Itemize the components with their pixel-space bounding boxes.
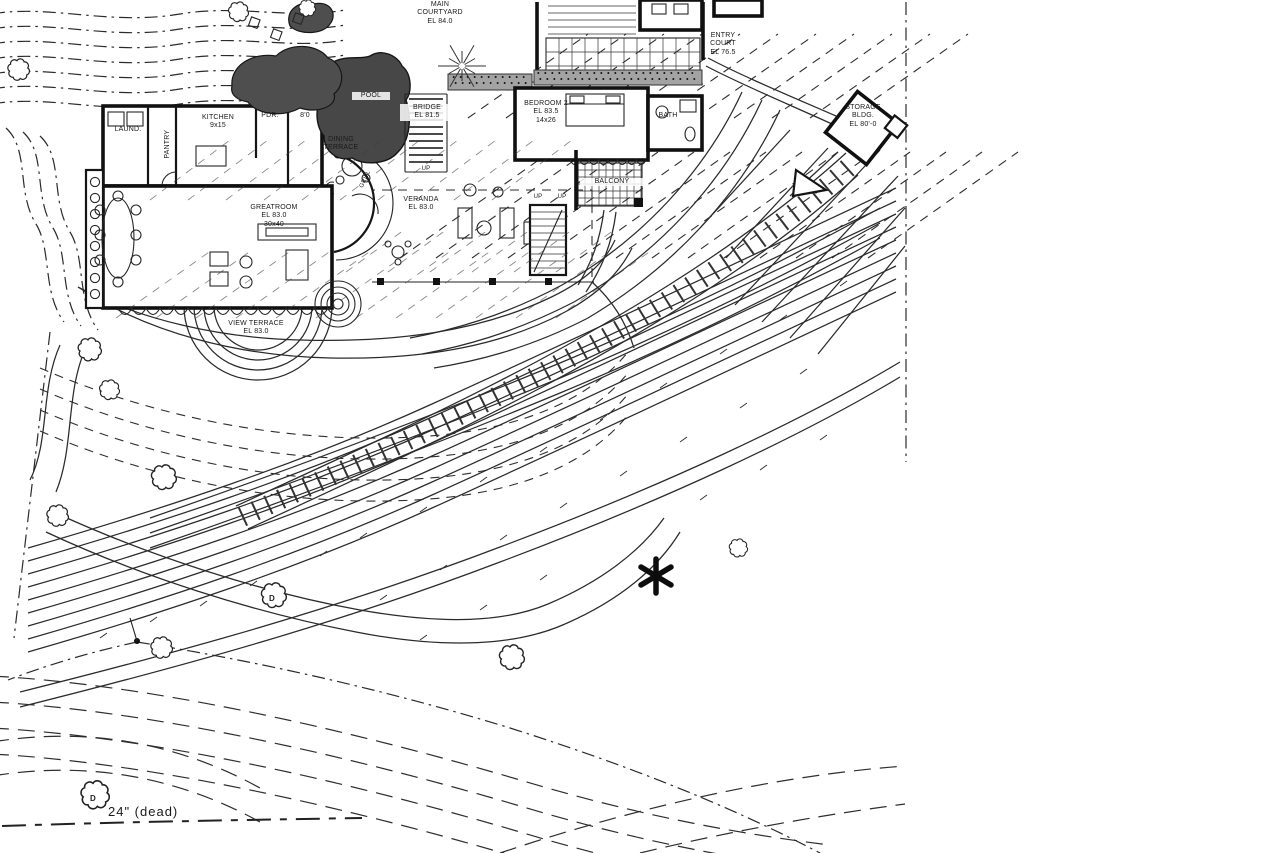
label-storage-bldg: STORAGE BLDG. EL 80'-0 [830, 104, 896, 129]
label-view-terrace: VIEW TERRACE EL 83.0 [210, 320, 302, 337]
label-dining-terrace: DINING TERRACE [314, 136, 368, 153]
label-up-bridge: UP [414, 166, 438, 173]
label-main-courtyard: MAIN COURTYARD EL 84.0 [405, 1, 475, 26]
great-room [86, 170, 361, 327]
label-closet-8-0: 8'0 [290, 112, 320, 120]
label-up-stair-a: UP [528, 194, 548, 201]
label-kitchen: KITCHEN 9x15 [188, 114, 248, 131]
label-pantry: PANTRY [164, 116, 172, 172]
slope-hatch-right [700, 130, 905, 354]
label-pool: POOL [352, 92, 390, 100]
contour-lines-lower [0, 676, 830, 853]
tree-tag-letter: D [269, 594, 275, 603]
label-bedroom2: BEDROOM 2 EL 83.5 14x26 [508, 100, 584, 125]
label-entry-court: ENTRY COURT EL 76.5 [695, 32, 751, 57]
label-greatroom: GREATROOM EL 83.0 30x40 [232, 204, 316, 229]
site-marker-asterisk [641, 559, 671, 593]
label-bridge: BRIDGE EL 81.5 [400, 104, 454, 121]
label-laundry: LAUND. [106, 126, 150, 134]
label-up-stair-b: UP [552, 194, 572, 201]
storage-paths [790, 152, 838, 196]
label-bath: BATH [648, 112, 688, 120]
label-balcony: BALCONY [580, 178, 644, 186]
tree-tag-letter: D [90, 794, 96, 803]
label-powder-room: PDR. [254, 112, 286, 120]
site-plan-page: DD MAIN COURTYARD EL 84.0 ENTRY COURT EL… [0, 0, 1280, 853]
tree-canopy [232, 3, 342, 114]
dining-terrace [334, 146, 393, 260]
label-veranda: VERANDA EL 83.0 [390, 196, 452, 213]
label-dead-tree: 24" (dead) [108, 804, 218, 820]
stairs [530, 205, 566, 275]
